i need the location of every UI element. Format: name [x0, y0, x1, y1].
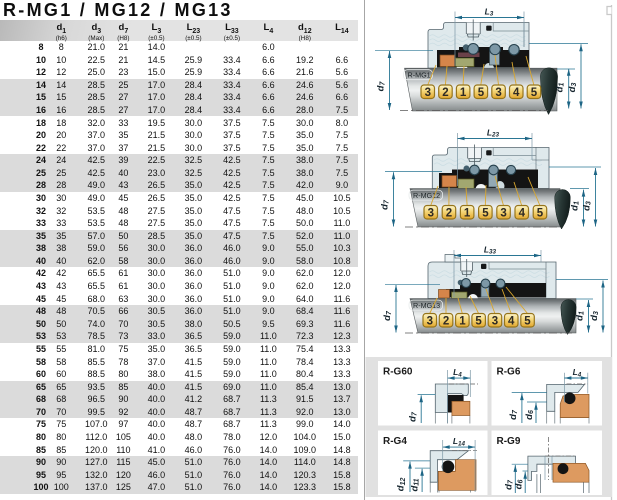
svg-text:d3: d3	[581, 201, 592, 211]
svg-text:2: 2	[443, 315, 449, 327]
svg-text:5: 5	[524, 315, 531, 327]
svg-text:d7: d7	[379, 199, 390, 210]
svg-text:5: 5	[478, 87, 485, 99]
svg-text:1: 1	[464, 207, 471, 219]
svg-text:3: 3	[495, 87, 501, 99]
svg-text:d7: d7	[382, 310, 393, 321]
svg-text:2: 2	[446, 207, 452, 219]
svg-text:R-G60: R-G60	[383, 367, 413, 378]
svg-text:5: 5	[537, 207, 544, 219]
svg-text:5: 5	[475, 315, 482, 327]
svg-text:d7: d7	[375, 81, 386, 92]
svg-text:1: 1	[459, 315, 466, 327]
svg-text:L3: L3	[485, 7, 494, 18]
svg-text:R-MG13: R-MG13	[413, 301, 440, 310]
svg-text:R-MG1: R-MG1	[408, 70, 431, 79]
svg-text:5: 5	[531, 87, 538, 99]
svg-text:3: 3	[492, 315, 498, 327]
svg-text:R-G9: R-G9	[497, 436, 521, 447]
svg-text:4: 4	[508, 315, 515, 327]
svg-text:1: 1	[460, 87, 467, 99]
svg-text:5: 5	[482, 207, 489, 219]
svg-text:3: 3	[500, 207, 506, 219]
svg-text:L23: L23	[487, 128, 500, 139]
svg-text:4: 4	[513, 87, 520, 99]
svg-text:d1: d1	[569, 201, 580, 211]
svg-text:L33: L33	[484, 245, 497, 256]
svg-text:R-G6: R-G6	[497, 367, 521, 378]
svg-text:3: 3	[425, 87, 431, 99]
svg-text:3: 3	[427, 315, 433, 327]
svg-text:R-G4: R-G4	[383, 436, 407, 447]
svg-text:d3: d3	[589, 311, 600, 321]
svg-text:4: 4	[519, 207, 526, 219]
svg-text:3: 3	[428, 207, 434, 219]
svg-text:2: 2	[442, 87, 448, 99]
